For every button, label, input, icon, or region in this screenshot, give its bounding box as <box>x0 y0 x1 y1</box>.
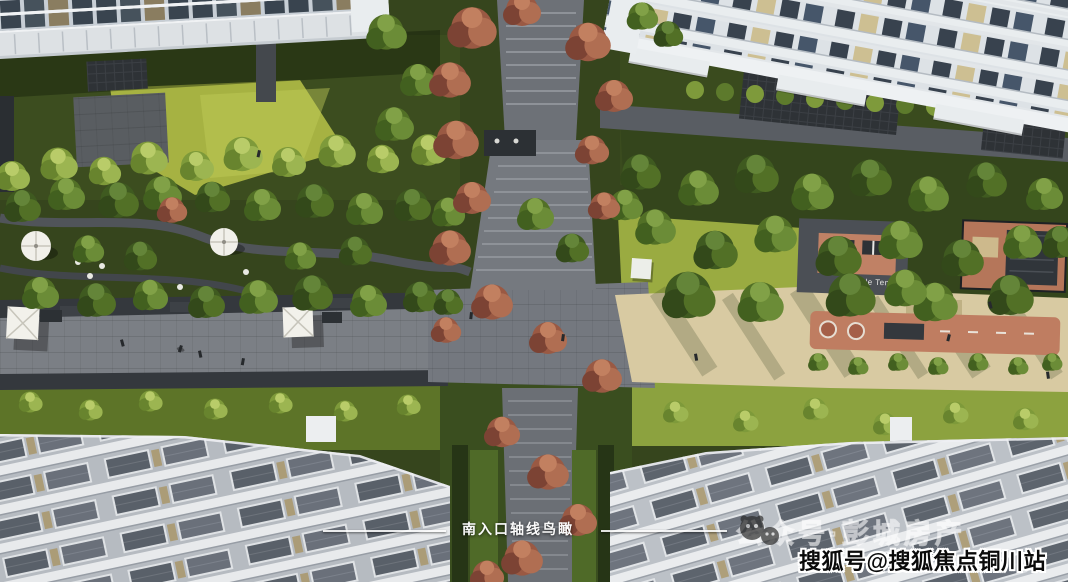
panda-chat-icon <box>736 512 784 550</box>
caption-line-left <box>323 530 446 532</box>
landscape-illustration: Table Tennis <box>0 0 1068 582</box>
aerial-render-scene: Table Tennis <box>0 0 1068 582</box>
caption-line-right <box>601 530 727 532</box>
render-caption: 南入口轴线鸟瞰 <box>462 519 574 539</box>
sohu-watermark-text: 搜狐号@搜狐焦点铜川站 <box>799 544 1046 576</box>
